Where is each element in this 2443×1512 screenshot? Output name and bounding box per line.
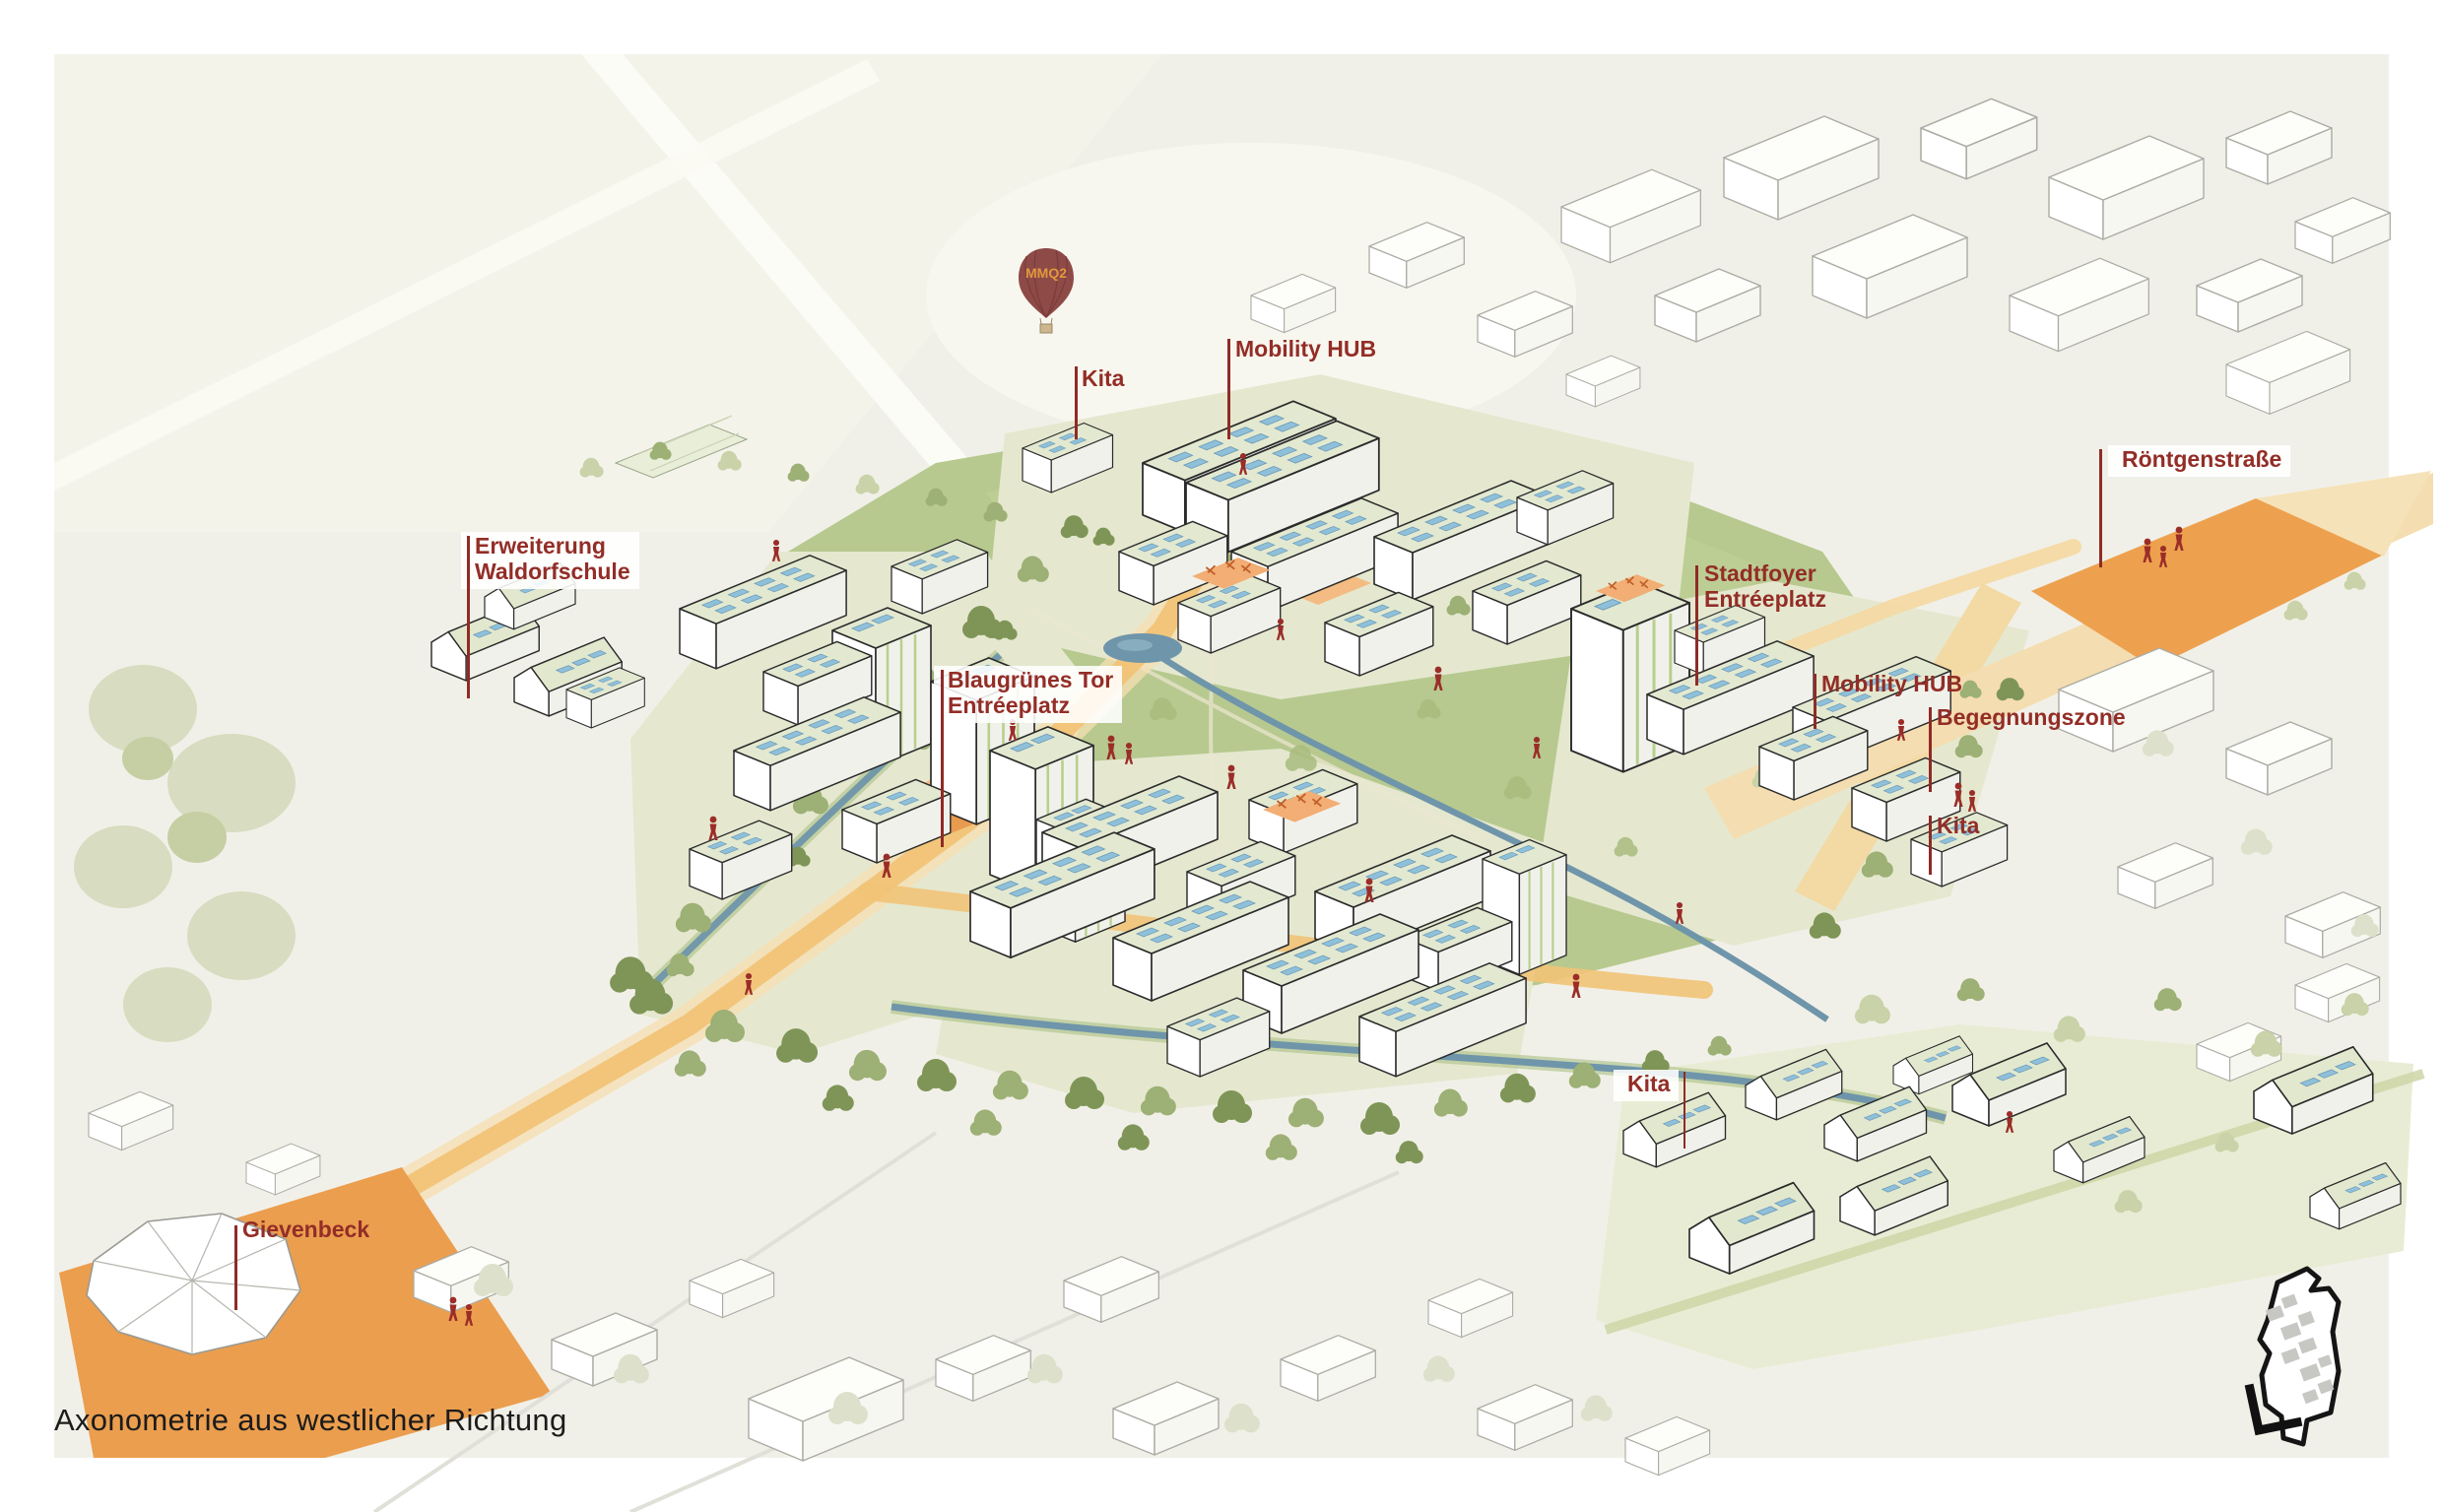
label-blaugruenes-tor-entreeplatz: Blaugrünes TorEntréeplatz [934, 666, 1122, 723]
label-erweiterung-waldorfschule: ErweiterungWaldorfschule [461, 532, 639, 589]
label-roentgenstrasse: Röntgenstraße [2108, 445, 2290, 477]
label-kita-south: Kita [1614, 1070, 1679, 1101]
leader-line [234, 1225, 237, 1310]
leader-line [1695, 565, 1698, 686]
leader-line [1929, 816, 1932, 875]
leader-line [467, 536, 470, 698]
leader-line [1075, 366, 1078, 439]
label-kita-north: Kita [1082, 366, 1124, 392]
leader-line [1227, 339, 1230, 439]
leader-line [1929, 707, 1932, 792]
label-gievenbeck: Gievenbeck [242, 1217, 369, 1243]
label-mobility-hub-north: Mobility HUB [1235, 337, 1376, 362]
drawing-caption: Axonometrie aus westlicher Richtung [54, 1403, 567, 1438]
masterplan-page: MMQ2 Kita Mobility HUB Röntgenstraße Erw… [0, 0, 2443, 1512]
leader-line [941, 670, 944, 847]
leader-line [2099, 449, 2102, 567]
label-stadtfoyer-entreeplatz: StadtfoyerEntréeplatz [1704, 561, 1826, 613]
axonometric-illustration: MMQ2 [0, 0, 2443, 1512]
leader-line [1814, 674, 1816, 729]
label-begegnungszone: Begegnungszone [1937, 705, 2126, 731]
balloon-label: MMQ2 [1025, 265, 1067, 281]
label-mobility-hub-east: Mobility HUB [1821, 672, 1962, 697]
label-kita-east: Kita [1937, 814, 1979, 839]
leader-line [1684, 1072, 1686, 1149]
